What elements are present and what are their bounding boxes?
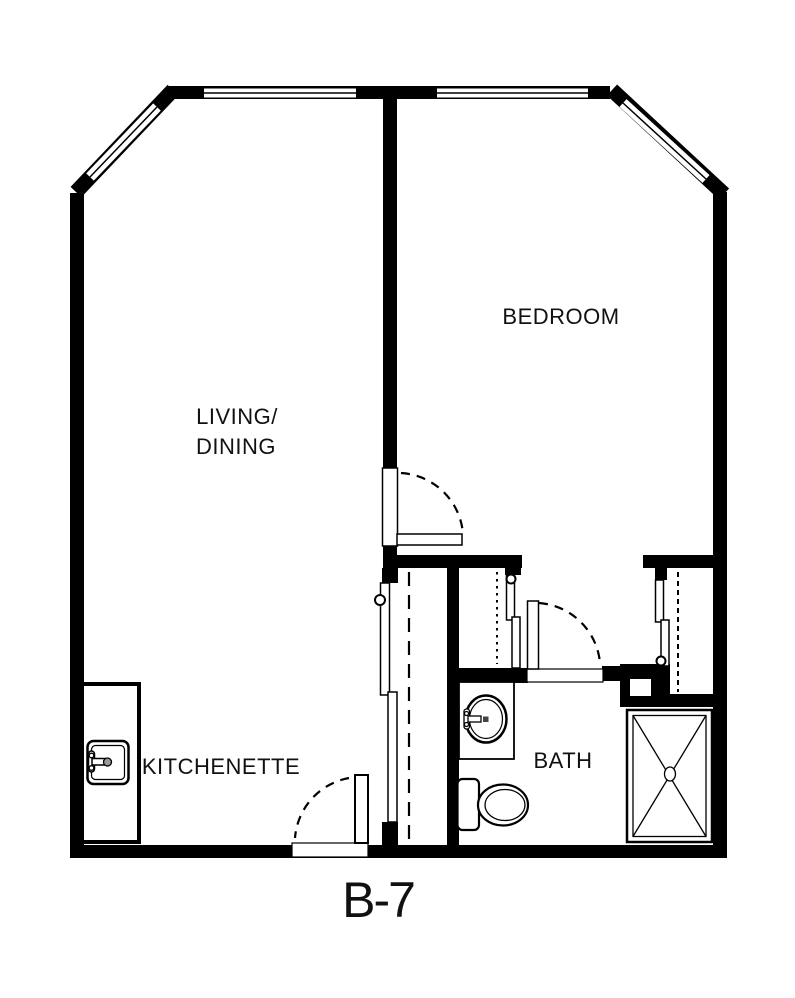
bathroom-faucet-spout xyxy=(468,716,481,722)
living-closet xyxy=(375,572,409,840)
wall-shower-top xyxy=(640,694,727,707)
bedroom-door-arc xyxy=(401,473,463,534)
kitchen-faucet-handle-cold xyxy=(89,766,94,771)
window-chamfer-left-mullion xyxy=(90,107,157,177)
bath-label: BATH xyxy=(533,746,592,776)
hall-closet-right-handle xyxy=(657,657,666,666)
living-dining-label-line1: LIVING/ xyxy=(196,402,278,432)
hall-closet-right-panel-a xyxy=(656,580,664,622)
bath-door-arc xyxy=(539,603,600,663)
wall-bath-top-left xyxy=(447,668,528,683)
wall-right xyxy=(713,192,727,858)
wall-closet1-top-stub xyxy=(505,555,521,575)
entry-door-leaf xyxy=(355,775,368,843)
bedroom-doorway xyxy=(383,468,398,546)
kitchen-faucet-handle-hot xyxy=(89,753,94,758)
wall-central xyxy=(383,99,397,468)
bathroom-sink-drain xyxy=(483,717,489,723)
plan-title: B-7 xyxy=(342,871,414,929)
wall-strip-bottom-stub xyxy=(382,822,398,845)
toilet-tank xyxy=(458,779,480,830)
hall-closet-left-panel-b xyxy=(512,617,520,668)
wall-strip-top-stub xyxy=(382,568,398,583)
bathroom-faucet-handle-cold xyxy=(465,723,469,727)
entry-door-arc xyxy=(295,778,349,838)
hall-closet-left xyxy=(497,572,520,668)
floor-plan-drawing xyxy=(0,0,795,998)
bedroom-label: BEDROOM xyxy=(502,302,619,332)
bathroom-faucet-handle-hot xyxy=(465,712,469,716)
bath-door xyxy=(527,601,603,682)
hall-closet-left-handle xyxy=(507,575,516,584)
bedroom-door-leaf xyxy=(397,534,462,545)
closet-sliding-panel-lower xyxy=(388,692,397,822)
wall-hall-left xyxy=(383,555,522,568)
wall-corner-notch xyxy=(630,679,651,696)
bedroom-door xyxy=(383,468,464,546)
floor-plan-b7: LIVING/ DINING BEDROOM KITCHENETTE BATH … xyxy=(0,0,795,998)
kitchenette-fixtures xyxy=(82,684,139,842)
bath-door-leaf xyxy=(528,601,539,669)
wall-bath-top-bar xyxy=(602,666,622,681)
shower-drain xyxy=(665,767,676,781)
living-dining-label-line2: DINING xyxy=(196,432,276,462)
kitchenette-label: KITCHENETTE xyxy=(142,752,300,782)
wall-closet2-top-stub xyxy=(655,568,667,580)
bath-doorway-threshold xyxy=(527,669,603,682)
window-chamfer-right-mullion xyxy=(623,103,706,179)
closet-door-handle xyxy=(375,595,385,605)
wall-bottom xyxy=(70,845,727,858)
entry-doorway-threshold xyxy=(292,843,368,857)
wall-hall-right xyxy=(643,555,713,568)
kitchen-sink-drain xyxy=(104,758,112,766)
entry-door xyxy=(292,775,368,857)
